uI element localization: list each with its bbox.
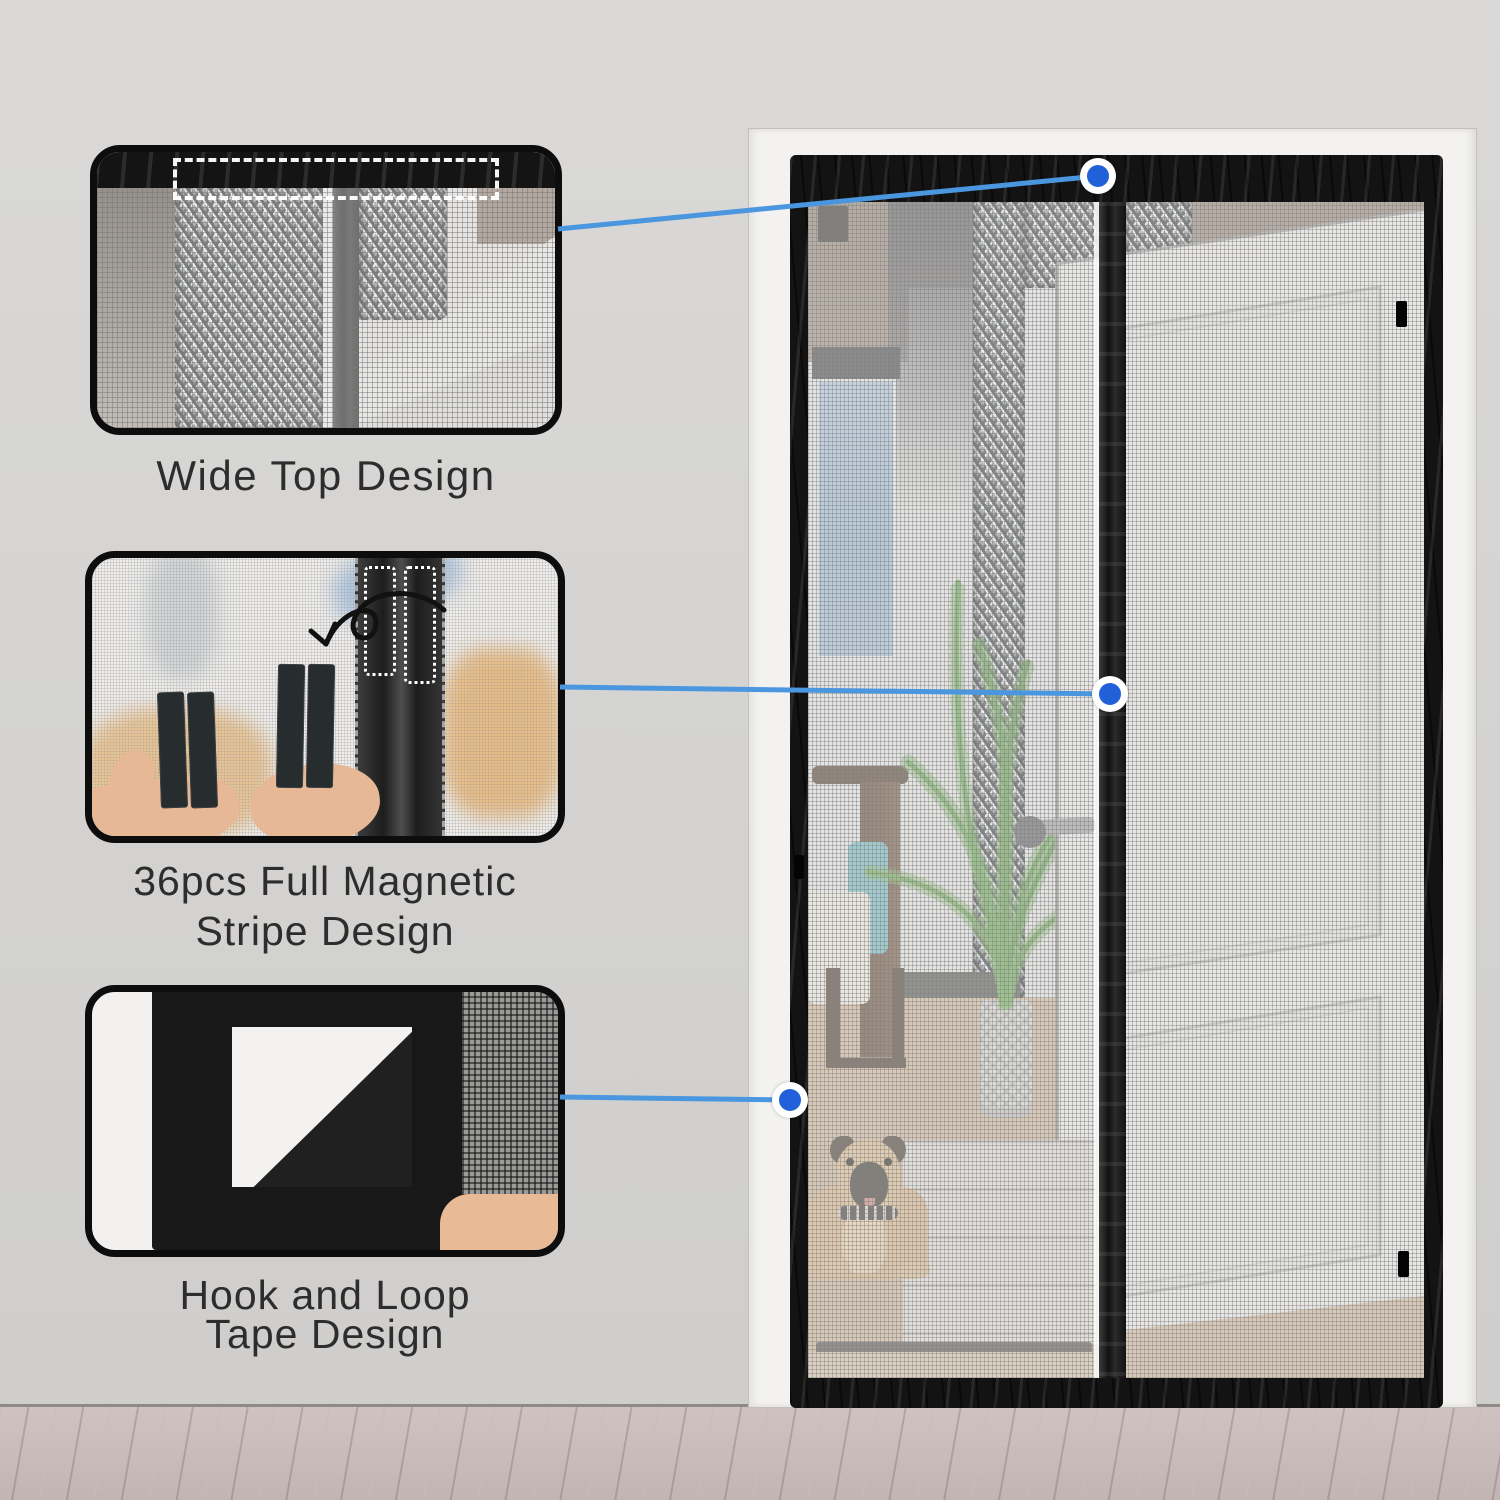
magnet-bar — [157, 692, 188, 809]
callout-image-wide-top — [90, 145, 562, 435]
frame-buckle — [1396, 301, 1407, 327]
magnetic-screen-frame — [790, 155, 1443, 1408]
callout-image-hook-loop — [85, 985, 565, 1257]
callout-image-magnetic-stripe — [85, 551, 565, 843]
magnet-bar — [306, 664, 335, 788]
door-casing — [748, 128, 1477, 1408]
callout-text: Wide Top Design — [156, 452, 495, 499]
callout-text: Stripe Design — [85, 906, 565, 956]
marker-dot-wide-top — [1080, 158, 1116, 194]
door-opening-scene — [808, 202, 1424, 1378]
callout-text: Hook and Loop — [85, 1276, 565, 1315]
callout-text: Tape Design — [85, 1315, 565, 1354]
callout-label-hook-loop: Hook and Loop Tape Design — [85, 1276, 565, 1354]
magnetic-center-strip — [1099, 202, 1126, 1378]
wood-floor — [0, 1404, 1500, 1500]
callout-label-wide-top: Wide Top Design — [90, 450, 562, 502]
screen-mesh-overlay — [97, 188, 555, 428]
callout-label-magnetic-stripe: 36pcs Full Magnetic Stripe Design — [85, 856, 565, 956]
finger — [440, 1194, 565, 1254]
frame-buckle — [794, 855, 804, 879]
product-infographic: Wide Top Design 36pcs Full Magnetic Stri… — [0, 0, 1500, 1500]
marker-dot-magnetic-stripe — [1092, 676, 1128, 712]
frame-buckle — [1398, 1251, 1409, 1277]
callout-text: 36pcs Full Magnetic — [85, 856, 565, 906]
highlight-dashed-box — [173, 158, 499, 200]
marker-dot-hook-loop — [772, 1082, 808, 1118]
magnet-bar — [187, 692, 218, 809]
magnet-bar — [276, 664, 305, 788]
